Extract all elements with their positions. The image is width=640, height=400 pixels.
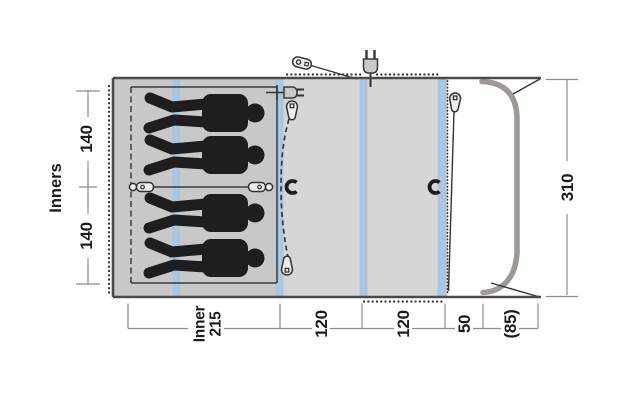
- front-frame-pole: [482, 82, 517, 293]
- dim-label-120-a: 120: [312, 310, 331, 337]
- dim-label-310: 310: [558, 174, 577, 201]
- dim-label-120-b: 120: [394, 310, 413, 337]
- dimension-right: 310: [546, 80, 578, 297]
- inner-door-zipper-pull-bottom: [282, 256, 293, 275]
- dimension-left: 140 140 Inners: [47, 91, 100, 284]
- pole-sleeve-3: [360, 78, 368, 297]
- dim-label-140-top: 140: [77, 125, 96, 152]
- canopy-guy-line-top: [513, 79, 540, 94]
- dim-label-inner: Inner: [191, 306, 208, 343]
- dim-label-85: (85): [501, 309, 520, 338]
- top-guy-zip: [292, 56, 357, 79]
- tent-floorplan-svg: 140 140 Inners 310 Inner 215 120 120 50 …: [0, 0, 640, 400]
- dim-label-215: 215: [207, 311, 224, 337]
- dim-label-140-bottom: 140: [77, 222, 96, 249]
- divider-zipper-pull-left: [129, 183, 153, 192]
- tent-floorplan-page: 140 140 Inners 310 Inner 215 120 120 50 …: [0, 0, 640, 400]
- divider-zipper-pull-right: [249, 183, 273, 192]
- front-door-zip-line: [449, 111, 455, 291]
- front-door-zipper-pull: [449, 93, 461, 112]
- pole-sleeve-4: [438, 78, 447, 297]
- inners-title: Inners: [47, 163, 65, 213]
- dim-label-50: 50: [455, 315, 474, 333]
- inner-door-zipper-pull-top: [287, 101, 298, 120]
- dimension-bottom: Inner 215 120 120 50 (85): [128, 300, 538, 349]
